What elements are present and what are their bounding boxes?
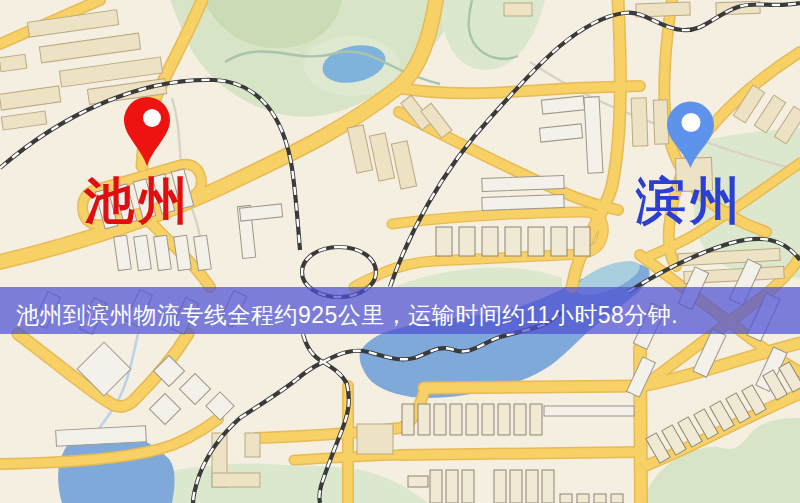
destination-city-label: 滨州	[636, 176, 744, 226]
origin-city-label: 池州	[84, 176, 192, 226]
map-canvas	[0, 0, 800, 503]
map-viewport[interactable]: 池州 滨州 池州到滨州物流专线全程约925公里，运输时间约11小时58分钟.	[0, 0, 800, 503]
route-info-banner: 池州到滨州物流专线全程约925公里，运输时间约11小时58分钟.	[0, 287, 800, 334]
origin-pin-icon[interactable]	[122, 96, 172, 168]
route-info-text: 池州到滨州物流专线全程约925公里，运输时间约11小时58分钟.	[16, 300, 678, 331]
destination-pin-icon[interactable]	[664, 101, 717, 170]
